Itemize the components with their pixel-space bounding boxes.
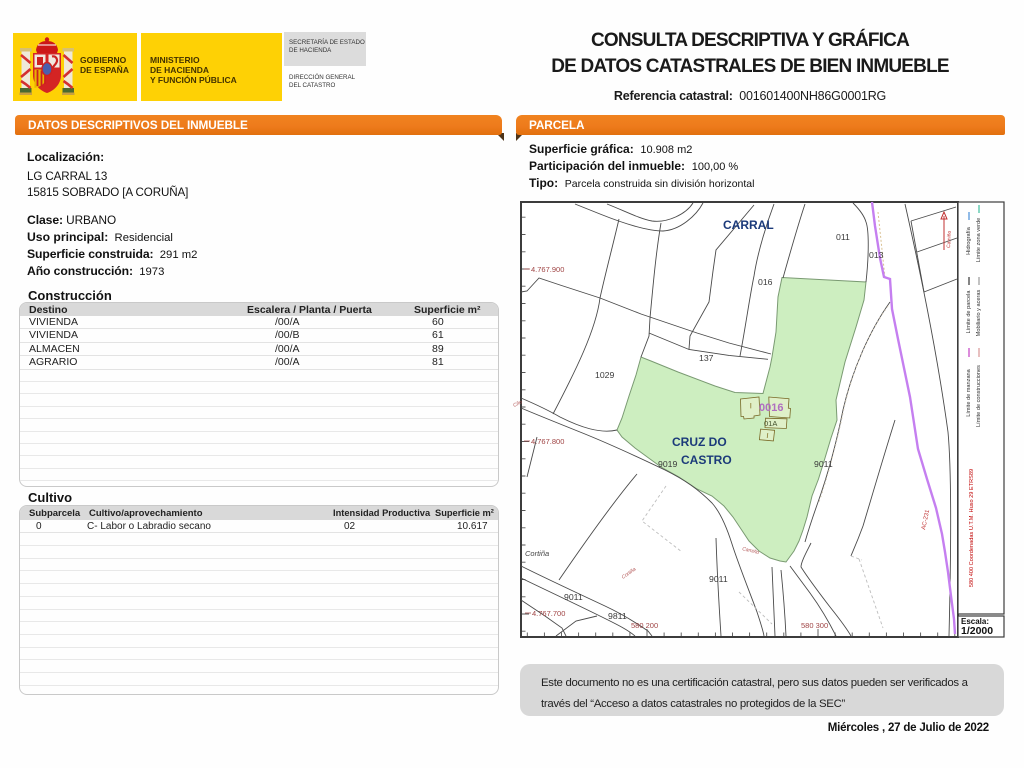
svg-text:580 400 Coordenadas U.T.M. Hus: 580 400 Coordenadas U.T.M. Huso 29 ETRS8…	[969, 469, 975, 587]
svg-text:9811: 9811	[608, 611, 627, 621]
svg-text:Mobiliario y aceras: Mobiliario y aceras	[976, 289, 982, 336]
svg-text:CASTRO: CASTRO	[681, 453, 732, 467]
svg-text:9011: 9011	[564, 592, 583, 602]
svg-text:137: 137	[699, 353, 714, 363]
svg-text:Cortiña: Cortiña	[525, 549, 549, 558]
svg-text:1/2000: 1/2000	[961, 625, 993, 637]
svg-text:CARRAL: CARRAL	[723, 218, 774, 232]
svg-text:580 300: 580 300	[801, 621, 828, 630]
svg-text:Límite de parcela: Límite de parcela	[966, 290, 972, 334]
svg-text:580 200: 580 200	[631, 621, 658, 630]
svg-text:011: 011	[836, 232, 850, 242]
svg-text:9019: 9019	[658, 459, 677, 469]
svg-text:0016: 0016	[759, 402, 783, 414]
svg-text:Camiño: Camiño	[946, 230, 953, 248]
svg-text:9011: 9011	[709, 574, 728, 584]
svg-text:4.767.800: 4.767.800	[531, 437, 564, 446]
svg-text:CRUZ DO: CRUZ DO	[672, 435, 727, 449]
svg-text:9011: 9011	[814, 459, 833, 469]
svg-text:4.767.700: 4.767.700	[532, 609, 565, 618]
svg-text:Límite zona verde: Límite zona verde	[976, 218, 982, 262]
svg-text:Límite de construcciones: Límite de construcciones	[976, 365, 982, 427]
svg-text:016: 016	[758, 277, 773, 287]
svg-text:4.767.900: 4.767.900	[531, 265, 564, 274]
svg-text:Hidrografía: Hidrografía	[966, 226, 972, 255]
svg-text:013: 013	[869, 250, 884, 260]
svg-text:Límite de manzana: Límite de manzana	[966, 368, 972, 416]
svg-text:1029: 1029	[595, 370, 614, 380]
svg-text:01A: 01A	[764, 419, 777, 428]
